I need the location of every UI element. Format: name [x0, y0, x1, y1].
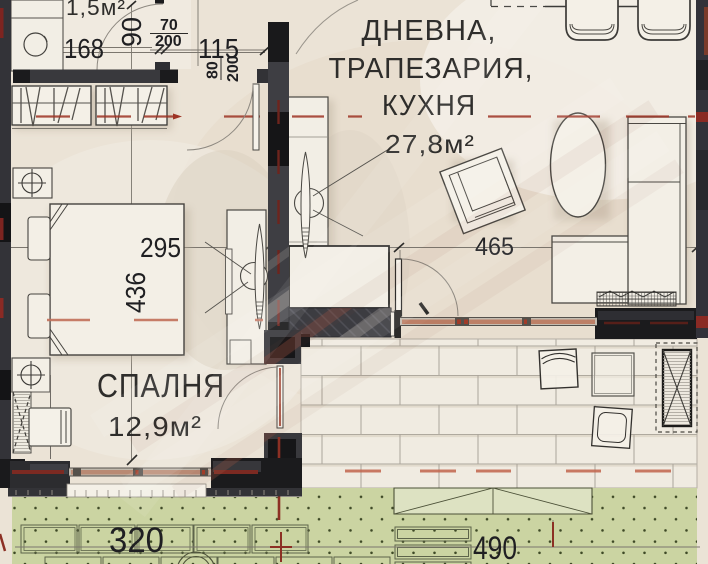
svg-text:70: 70 — [160, 17, 178, 34]
svg-text:320: 320 — [109, 521, 164, 560]
svg-text:295: 295 — [140, 232, 181, 263]
svg-text:200: 200 — [155, 33, 182, 50]
svg-text:200: 200 — [225, 55, 242, 82]
svg-text:80: 80 — [205, 61, 222, 79]
svg-text:490: 490 — [473, 530, 517, 564]
svg-text:90: 90 — [116, 17, 147, 47]
svg-text:436: 436 — [120, 272, 151, 313]
svg-text:168: 168 — [64, 33, 104, 64]
svg-text:1,5м²: 1,5м² — [66, 0, 126, 20]
